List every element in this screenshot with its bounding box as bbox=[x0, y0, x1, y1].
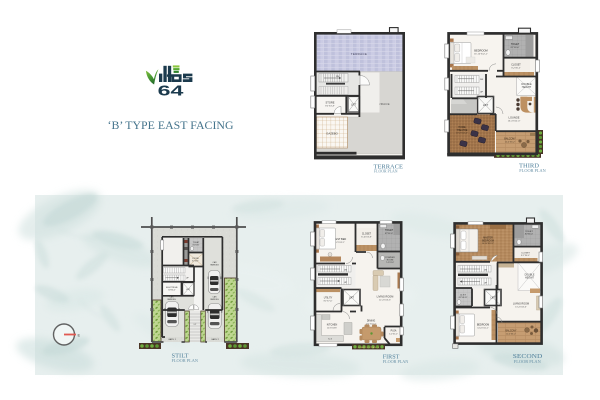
svg-text:8'-2"X6'-0": 8'-2"X6'-0" bbox=[521, 255, 530, 257]
svg-text:HEIGHT: HEIGHT bbox=[525, 276, 535, 279]
svg-text:FLOOR PLAN: FLOOR PLAN bbox=[172, 358, 199, 363]
svg-text:12'4"X13'6": 12'4"X13'6" bbox=[327, 328, 337, 330]
svg-text:TOILET: TOILET bbox=[511, 43, 520, 46]
svg-text:12'-4"X6'-2": 12'-4"X6'-2" bbox=[506, 333, 516, 335]
svg-text:14'-10"X13'-2": 14'-10"X13'-2" bbox=[482, 243, 494, 245]
svg-text:LIFT: LIFT bbox=[351, 104, 357, 107]
svg-text:8'2"X6'-0": 8'2"X6'-0" bbox=[385, 233, 393, 235]
svg-text:8'2"X6'-0": 8'2"X6'-0" bbox=[511, 47, 520, 49]
svg-text:LIFT: LIFT bbox=[490, 297, 496, 300]
svg-text:16'-10"X12'-1": 16'-10"X12'-1" bbox=[474, 54, 488, 56]
svg-text:FLOOR PLAN: FLOOR PLAN bbox=[514, 359, 542, 364]
svg-text:CLOSET: CLOSET bbox=[362, 234, 372, 236]
svg-text:DINING: DINING bbox=[367, 320, 376, 323]
svg-text:DN: DN bbox=[484, 270, 488, 272]
svg-text:8'2"X3'6": 8'2"X3'6" bbox=[193, 244, 200, 246]
svg-text:PARKING: PARKING bbox=[210, 264, 219, 267]
svg-text:BEDROOM: BEDROOM bbox=[477, 324, 489, 327]
svg-text:13'-4"X12'-3": 13'-4"X12'-3" bbox=[508, 121, 521, 123]
svg-text:LIVING ROOM: LIVING ROOM bbox=[513, 303, 529, 306]
svg-text:12'-4"X13'-6": 12'-4"X13'-6" bbox=[379, 300, 391, 302]
svg-text:GRAND ENTRANCE: GRAND ENTRANCE bbox=[358, 346, 380, 349]
svg-text:MASTER: MASTER bbox=[483, 237, 493, 240]
svg-text:GATE 1: GATE 1 bbox=[168, 338, 176, 341]
svg-text:TOILET: TOILET bbox=[385, 230, 394, 232]
svg-text:PARKING: PARKING bbox=[210, 298, 219, 301]
svg-text:GATE 2: GATE 2 bbox=[211, 338, 219, 341]
svg-text:13'-4"X13'-6": 13'-4"X13'-6" bbox=[515, 306, 527, 308]
svg-text:E: E bbox=[78, 333, 81, 338]
svg-text:S+S: S+S bbox=[328, 339, 333, 341]
svg-text:8'2"X3'-8": 8'2"X3'-8" bbox=[325, 106, 335, 108]
svg-text:FLOOR PLAN: FLOOR PLAN bbox=[519, 168, 546, 173]
svg-text:LIFT: LIFT bbox=[349, 297, 355, 300]
svg-text:UTILITY: UTILITY bbox=[324, 298, 333, 300]
svg-text:FLOOR PLAN: FLOOR PLAN bbox=[374, 169, 398, 174]
svg-text:PUJA: PUJA bbox=[391, 330, 397, 333]
svg-text:THEATRE: THEATRE bbox=[457, 129, 468, 132]
svg-text:8'2"X6'-0": 8'2"X6'-0" bbox=[525, 234, 533, 236]
svg-text:‘B’ TYPE EAST FACING: ‘B’ TYPE EAST FACING bbox=[108, 118, 234, 132]
svg-text:GAZEBO: GAZEBO bbox=[326, 132, 338, 136]
svg-text:8'2"X3'6": 8'2"X3'6" bbox=[192, 260, 199, 262]
svg-text:8'2"X6'-0": 8'2"X6'-0" bbox=[168, 289, 176, 291]
svg-text:TERRACE: TERRACE bbox=[351, 52, 367, 56]
svg-text:BEDROOM: BEDROOM bbox=[482, 240, 494, 242]
svg-text:DN: DN bbox=[480, 79, 484, 81]
svg-text:UP: UP bbox=[480, 91, 484, 93]
svg-text:LIVING ROOM: LIVING ROOM bbox=[377, 296, 394, 299]
svg-text:64: 64 bbox=[158, 82, 185, 99]
svg-text:LIFT: LIFT bbox=[483, 103, 489, 107]
svg-text:CLOSET: CLOSET bbox=[521, 253, 530, 255]
svg-text:FLOOR PLAN: FLOOR PLAN bbox=[383, 359, 409, 364]
svg-text:KITCHEN: KITCHEN bbox=[327, 324, 338, 327]
svg-text:8'2"X7'-6": 8'2"X7'-6" bbox=[324, 300, 333, 302]
svg-text:TOILET: TOILET bbox=[525, 231, 533, 233]
svg-text:19'-9"X12'-4": 19'-9"X12'-4" bbox=[456, 133, 468, 135]
svg-text:6'2"X8'-11": 6'2"X8'-11" bbox=[459, 297, 468, 299]
svg-text:HEIGHT: HEIGHT bbox=[522, 86, 532, 89]
svg-text:14'-0"X11'-1": 14'-0"X11'-1" bbox=[477, 327, 489, 329]
svg-text:7'-4"X3'-8": 7'-4"X3'-8" bbox=[386, 262, 395, 264]
svg-text:CLOSET: CLOSET bbox=[511, 64, 521, 67]
svg-text:12'-4"X6'-2": 12'-4"X6'-2" bbox=[505, 141, 516, 143]
svg-text:5'-0"X5'-0": 5'-0"X5'-0" bbox=[389, 333, 398, 335]
svg-text:8'-2"X6'-0": 8'-2"X6'-0" bbox=[511, 67, 521, 69]
svg-text:BALCONY: BALCONY bbox=[504, 138, 516, 141]
svg-text:8'-10"X3'-8": 8'-10"X3'-8" bbox=[361, 236, 372, 238]
svg-text:STORE: STORE bbox=[326, 101, 335, 105]
svg-text:LIFT: LIFT bbox=[186, 289, 191, 291]
svg-text:DN: DN bbox=[344, 270, 348, 272]
svg-text:BALCONY: BALCONY bbox=[506, 330, 517, 333]
svg-text:LOUNGE: LOUNGE bbox=[509, 116, 520, 120]
svg-text:PARKING: PARKING bbox=[167, 298, 176, 301]
svg-text:BEDROOM: BEDROOM bbox=[474, 49, 487, 53]
